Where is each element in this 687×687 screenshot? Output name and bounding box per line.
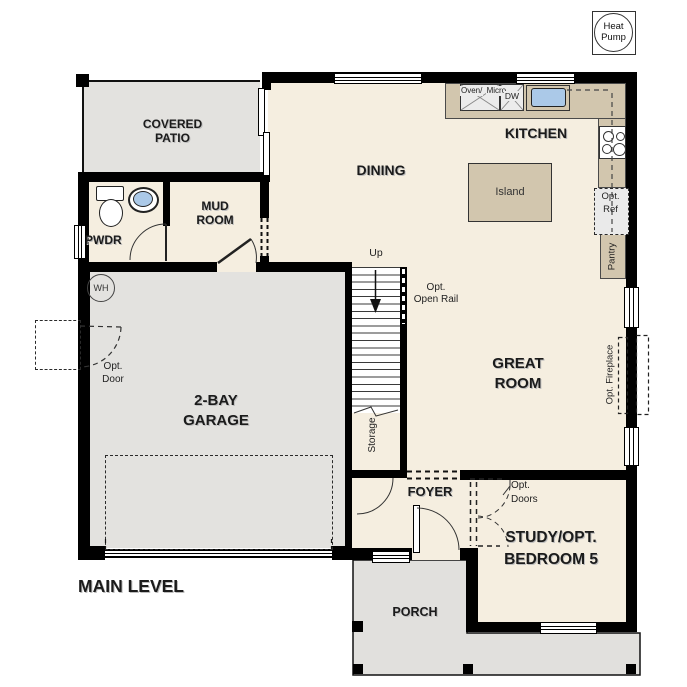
opt-ref-label: Opt. Ref — [594, 191, 627, 217]
burner-icon — [603, 131, 614, 142]
water-heater-label: WH — [94, 283, 109, 293]
heat-pump-box: Heat Pump — [592, 11, 636, 55]
wall-garage-door-left — [78, 546, 105, 560]
wall-mud-bottom-garage-top — [78, 262, 352, 272]
wall-left-garage — [78, 262, 90, 560]
water-heater: WH — [87, 274, 115, 302]
porch-label: PORCH — [386, 605, 444, 620]
porch-post — [353, 664, 363, 674]
patio-slider-panel-2 — [263, 132, 270, 176]
dining-label: DINING — [334, 162, 428, 179]
island-label: Island — [468, 186, 552, 199]
oven-micro-label: Oven/ Micro — [460, 86, 500, 96]
main-level-title: MAIN LEVEL — [78, 576, 223, 597]
pantry-label: Pantry — [607, 217, 620, 297]
burner-icon — [602, 144, 612, 154]
garage-attic-dashed-outline — [105, 455, 333, 550]
greatroom-window-south — [624, 427, 639, 466]
toilet-bowl — [99, 199, 123, 227]
opt-doors-label: Opt. Doors — [511, 479, 555, 506]
wall-top — [262, 72, 637, 83]
porch-post — [626, 664, 636, 674]
porch-post — [352, 621, 363, 632]
opt-door-label: Opt. Door — [93, 361, 133, 386]
wall-pwdr-mud-divider — [163, 182, 170, 226]
covered-patio-label: COVERED PATIO — [120, 117, 225, 145]
mud-garage-door-opening — [217, 262, 256, 272]
patio-corner-post — [76, 74, 89, 87]
staircase-treads — [352, 267, 400, 413]
heat-pump-circle: Heat Pump — [594, 13, 633, 52]
opt-fireplace-outer-box — [637, 336, 649, 415]
wall-garage-door-right — [332, 546, 352, 560]
mud-room-label: MUD ROOM — [184, 199, 246, 227]
study-label: STUDY/OPT. BEDROOM 5 — [488, 527, 614, 570]
kitchen-window — [516, 73, 575, 84]
front-door-leaf — [413, 505, 420, 553]
great-room-label: GREAT ROOM — [478, 354, 558, 393]
wall-stairs-left — [345, 272, 352, 558]
kitchen-label: KITCHEN — [494, 125, 578, 142]
heat-pump-label-2: Pump — [601, 33, 626, 43]
pwdr-label: PWDR — [85, 233, 133, 247]
burner-icon — [616, 132, 625, 141]
floor-plan-canvas: WH Heat Pump — [0, 0, 687, 687]
cooktop — [599, 126, 626, 159]
opt-door-dashed-box — [35, 320, 81, 370]
porch-post — [463, 664, 473, 674]
wall-stairs-right — [400, 267, 407, 470]
wall-study-west — [466, 548, 478, 632]
opt-fireplace-label: Opt. Fireplace — [605, 335, 618, 415]
greatroom-window-north — [624, 287, 639, 328]
storage-label: Storage — [367, 395, 381, 475]
dining-window — [334, 73, 422, 84]
study-window — [540, 622, 597, 634]
foyer-front-window — [372, 551, 410, 563]
wall-right — [626, 72, 637, 632]
garage-door — [105, 549, 332, 558]
patio-slider-panel-1 — [258, 88, 265, 136]
dishwasher-label: DW — [500, 91, 524, 101]
pwdr-sink-basin — [133, 191, 153, 207]
sink-basin — [531, 88, 566, 107]
wall-patio-bottom — [78, 172, 270, 182]
heat-pump-label-1: Heat — [603, 22, 623, 32]
garage-label: 2-BAY GARAGE — [166, 391, 266, 432]
up-label: Up — [360, 247, 392, 260]
mud-dining-cased-opening — [259, 218, 270, 256]
burner-icon — [613, 143, 626, 156]
foyer-label: FOYER — [402, 484, 458, 499]
opt-open-rail-label: Opt. Open Rail — [407, 282, 465, 306]
